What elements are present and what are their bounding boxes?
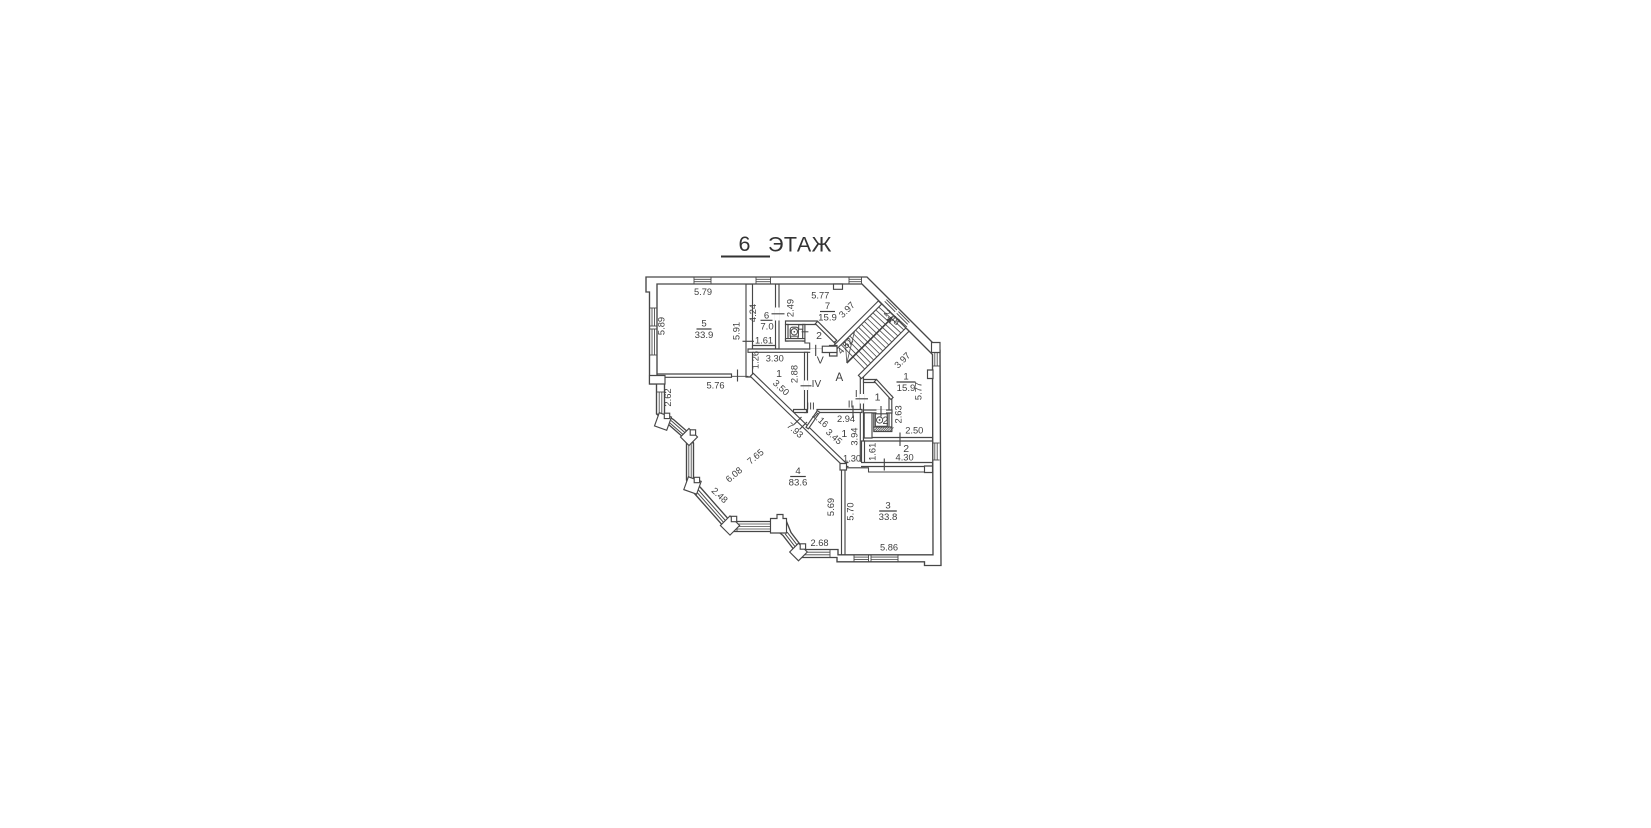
svg-text:ЭТАЖ: ЭТАЖ xyxy=(768,233,832,257)
svg-text:5.77: 5.77 xyxy=(811,291,829,301)
svg-text:3.30: 3.30 xyxy=(766,353,784,363)
svg-text:4: 4 xyxy=(795,466,801,477)
svg-text:2.50: 2.50 xyxy=(905,425,923,435)
svg-text:83.6: 83.6 xyxy=(789,477,808,488)
svg-text:15.9: 15.9 xyxy=(818,312,837,323)
svg-text:33.8: 33.8 xyxy=(879,512,898,523)
svg-text:2: 2 xyxy=(882,415,888,427)
svg-text:33.9: 33.9 xyxy=(695,330,714,341)
svg-text:5: 5 xyxy=(701,319,706,330)
svg-text:7: 7 xyxy=(825,301,830,312)
svg-text:5.89: 5.89 xyxy=(657,317,667,335)
svg-text:4.30: 4.30 xyxy=(896,452,914,462)
svg-text:1.61: 1.61 xyxy=(868,443,878,461)
svg-text:1.61: 1.61 xyxy=(755,336,773,346)
svg-text:3: 3 xyxy=(885,501,890,512)
svg-text:6: 6 xyxy=(739,232,751,256)
svg-text:3.94: 3.94 xyxy=(850,428,860,446)
svg-text:IV: IV xyxy=(812,379,822,390)
svg-text:2.49: 2.49 xyxy=(786,299,796,317)
svg-text:4.24: 4.24 xyxy=(748,304,758,322)
svg-text:2.63: 2.63 xyxy=(894,405,904,423)
svg-text:1.26: 1.26 xyxy=(751,351,761,369)
svg-text:1: 1 xyxy=(903,372,908,383)
svg-text:1: 1 xyxy=(875,392,881,404)
svg-text:III: III xyxy=(806,402,814,413)
svg-text:5.77: 5.77 xyxy=(914,382,924,400)
svg-text:2.94: 2.94 xyxy=(837,414,855,424)
svg-text:1.30: 1.30 xyxy=(843,454,861,464)
svg-text:A: A xyxy=(835,372,843,384)
svg-text:5.86: 5.86 xyxy=(880,543,898,553)
svg-text:5.70: 5.70 xyxy=(846,502,856,520)
svg-text:V: V xyxy=(817,355,824,367)
svg-text:2.88: 2.88 xyxy=(790,365,800,383)
svg-text:7.0: 7.0 xyxy=(760,322,773,333)
svg-text:5.76: 5.76 xyxy=(706,381,724,391)
svg-text:5.69: 5.69 xyxy=(826,498,836,516)
svg-text:2.68: 2.68 xyxy=(810,538,828,548)
svg-text:II: II xyxy=(848,400,854,411)
svg-text:2.62: 2.62 xyxy=(663,388,673,406)
svg-text:5.79: 5.79 xyxy=(694,287,712,297)
svg-text:I: I xyxy=(855,389,858,400)
svg-text:2: 2 xyxy=(816,330,822,342)
svg-text:5.91: 5.91 xyxy=(732,322,742,340)
